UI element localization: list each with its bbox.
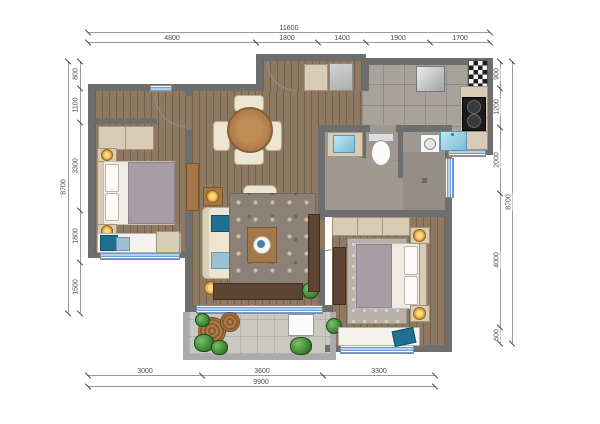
bedroom2-headboard — [419, 243, 427, 309]
bath-basin — [333, 135, 355, 153]
dim-left-seg-1: 800 — [73, 67, 80, 81]
bedroom1-door-gap — [185, 96, 192, 130]
bedroom2-window — [340, 345, 414, 354]
bedroom1-corner-cabinet — [156, 231, 180, 253]
shower-drain-icon — [422, 178, 427, 183]
dim-top-total: 11600 — [279, 25, 300, 32]
burner-1-icon — [467, 100, 481, 114]
bathroom-bottom-wall — [325, 210, 452, 217]
balcony-plant-1-icon — [195, 313, 210, 327]
dim-top-seg-4: 1900 — [389, 35, 407, 42]
faucet-icon — [451, 133, 454, 136]
dim-left-total: 8700 — [61, 178, 68, 196]
media-console — [213, 283, 303, 300]
kitchen-shelf-checker — [468, 60, 488, 88]
bedroom2-wardrobe — [332, 217, 410, 236]
entry-top-wall — [256, 54, 366, 61]
dim-bottom-total: 9900 — [252, 379, 270, 386]
bedroom1-wardrobe — [98, 126, 154, 150]
washer-door-icon — [424, 138, 436, 150]
floor-plan: 11600 4800 1800 1400 1900 1700 8700 800 … — [0, 0, 600, 424]
bedroom1-lamp-top-icon — [101, 149, 113, 161]
bedroom2-tv-cabinet — [333, 247, 346, 305]
dim-bottom-seg-1: 3000 — [136, 368, 154, 375]
bedroom1-bench-pillow-2 — [116, 237, 130, 251]
dim-left-seg-3: 3300 — [73, 157, 80, 175]
dim-bottom-seg-2: 3600 — [253, 368, 271, 375]
bedroom1-pillow-1 — [105, 164, 119, 192]
left-exterior-wall — [88, 84, 95, 258]
step-wall — [185, 251, 192, 312]
dim-right-seg-3: 2000 — [494, 151, 501, 169]
hallway-floor — [318, 91, 362, 125]
bedroom1-pillow-2 — [105, 193, 119, 221]
kitchen-counter-bottom — [464, 131, 488, 150]
bathroom-door-gap — [370, 125, 396, 132]
bathroom-window — [445, 158, 454, 198]
hall-transom-window — [150, 85, 172, 92]
bedroom2-pillow-1 — [404, 246, 418, 275]
bedroom1-closet-wall — [95, 118, 157, 124]
toilet-bowl-icon — [371, 140, 391, 166]
dim-bottom-total-line — [88, 386, 435, 387]
bedroom2-pillow-2 — [404, 276, 418, 305]
entry-mat — [329, 63, 353, 91]
bedroom1-wall-panel — [186, 163, 199, 211]
bedroom2-lamp-top-icon — [413, 229, 426, 242]
sofa-pillow-blue — [211, 252, 231, 269]
shoe-cabinet — [304, 64, 328, 91]
dim-right-total: 8700 — [506, 193, 513, 211]
balcony-bush-2-icon — [211, 340, 228, 355]
dim-left-seg-5: 1500 — [73, 278, 80, 296]
dim-bottom-seg-line — [88, 375, 435, 376]
main-top-wall — [88, 84, 263, 91]
tv-console-east — [308, 214, 320, 292]
dim-right-seg-1: 900 — [494, 67, 501, 81]
balcony-bush-3-icon — [290, 337, 312, 355]
dining-table — [227, 107, 273, 153]
sofa-pillow-teal — [211, 215, 231, 232]
dim-right-seg-2: 1200 — [494, 98, 501, 116]
dim-top-seg-1: 4800 — [163, 35, 181, 42]
dim-left-seg-2: 1100 — [73, 96, 80, 113]
dim-left-seg-4: 1800 — [73, 227, 80, 245]
balcony-slider-window — [196, 305, 323, 314]
dim-top-seg-3: 1400 — [333, 35, 351, 42]
dim-bottom-seg-3: 3300 — [370, 368, 388, 375]
dim-left-seg-line — [80, 61, 81, 313]
balcony-pouf-small — [220, 312, 240, 332]
bedroom2-lamp-bottom-icon — [413, 307, 426, 320]
dim-top-total-line — [88, 32, 490, 33]
dim-left-total-line — [68, 61, 69, 313]
balcony-parapet-bottom — [183, 354, 336, 360]
dim-top-seg-5: 1700 — [451, 35, 469, 42]
refrigerator — [416, 66, 445, 92]
bedroom2-blanket — [356, 244, 392, 308]
side-table-lamp-icon — [206, 190, 219, 203]
bedroom1-blanket — [128, 162, 175, 224]
burner-2-icon — [467, 114, 481, 128]
balcony-parapet-left — [183, 312, 189, 360]
dim-top-seg-2: 1800 — [278, 35, 296, 42]
entry-right-wall — [362, 58, 369, 91]
tray-bowl-icon — [257, 240, 265, 248]
entry-left-wall — [256, 54, 263, 91]
balcony-cabinet — [288, 314, 314, 336]
dim-right-seg-4: 4000 — [494, 251, 501, 269]
